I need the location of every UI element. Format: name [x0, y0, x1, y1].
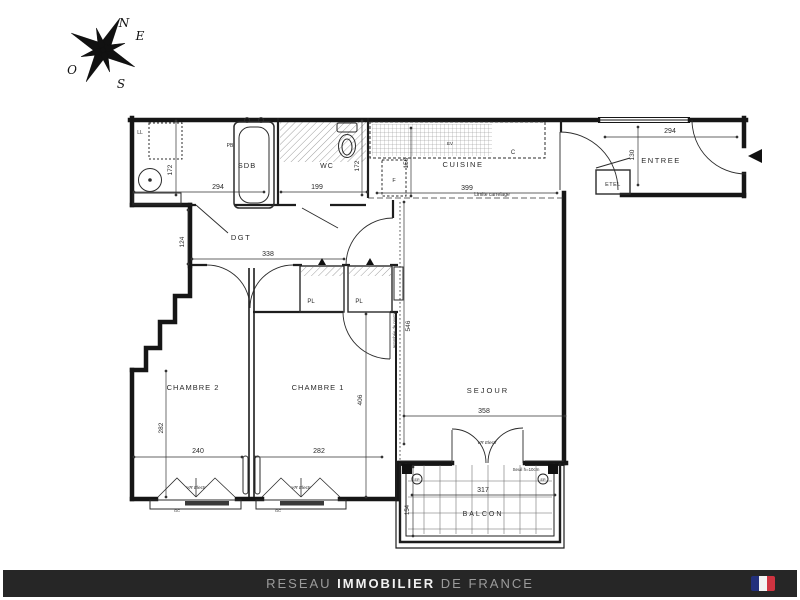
room-label-balcon: BALCON	[463, 511, 504, 518]
french-flag-icon	[751, 576, 775, 591]
dim-cuisine-depth: 150	[403, 157, 410, 168]
room-label-dgt: DGT	[231, 233, 251, 242]
fixture-label-ll: LL	[137, 130, 143, 136]
floor-plan-drawing: N E O S	[0, 0, 800, 570]
exterior-walls	[130, 118, 746, 499]
room-label-pl-1: PL	[307, 299, 315, 305]
room-label-entree: ENTREE	[641, 156, 680, 165]
fixture-label-ep-1: EP	[414, 478, 420, 482]
room-label-chambre1: CHAMBRE 1	[292, 383, 345, 392]
dim-chambre1-width: 282	[313, 448, 325, 455]
dimension-lines	[133, 120, 738, 537]
dim-sejour-height: 546	[405, 320, 412, 331]
dim-sejour-width: 358	[478, 408, 490, 415]
fixture-label-pb: PB	[227, 143, 234, 149]
compass-s-label: S	[117, 77, 125, 91]
fixture-label-gc-2: GC	[275, 508, 281, 513]
windows	[150, 461, 564, 509]
balcony	[396, 463, 564, 548]
entree-window	[598, 118, 690, 123]
dim-chambre1-height: 406	[357, 394, 364, 405]
fixtures	[133, 118, 630, 494]
fixture-label-f: F	[392, 178, 396, 184]
guide-lines	[368, 198, 564, 460]
footer-brand-de-france: DE FRANCE	[435, 576, 534, 591]
dim-chambre2-height: 282	[158, 422, 165, 433]
entry-arrow-icon	[748, 149, 762, 163]
dim-cuisine-width: 399	[461, 185, 473, 192]
fixture-label-ev: EV	[447, 141, 453, 146]
compass-e-label: E	[135, 29, 145, 43]
fixture-label-ep-2: EP	[540, 478, 546, 482]
room-label-sejour: SEJOUR	[467, 386, 509, 395]
dim-wc-depth: 172	[354, 160, 361, 171]
dim-chambre2-width: 240	[192, 448, 204, 455]
dim-balcon-depth: 154	[405, 504, 411, 515]
dim-balcon-width: 317	[477, 487, 489, 494]
room-label-etel: ETEL	[605, 182, 621, 188]
annotation-vr-sejour: VR Electr	[477, 440, 497, 445]
labels: SDB WC CUISINE ENTREE ETEL DGT PL PL CHA…	[137, 128, 680, 518]
compass-rose: N E O S	[54, 1, 151, 98]
floor-plan-page: N E O S	[0, 0, 800, 600]
annotation-limite-carrelage: Limite carrelage	[474, 192, 510, 198]
dim-entree-width: 294	[664, 128, 676, 135]
footer-brand-immobilier: IMMOBILIER	[337, 576, 435, 591]
dim-entree-depth: 130	[629, 149, 636, 160]
annotation-vr-chambre2: VR Electr	[186, 485, 206, 490]
compass-n-label: N	[118, 16, 130, 30]
annotation-seuil: Seuil h=10cm	[513, 467, 540, 472]
room-label-pl-2: PL	[355, 299, 363, 305]
room-label-wc: WC	[320, 163, 334, 170]
room-label-sdb: SDB	[238, 161, 256, 170]
dim-sdb-width: 294	[212, 184, 224, 191]
dim-wc-width: 199	[311, 184, 323, 191]
room-label-cuisine: CUISINE	[443, 160, 484, 169]
dim-sdb-depth: 172	[167, 164, 174, 175]
dim-dgt-depth: 124	[179, 236, 186, 247]
fixture-label-gc-1: GC	[174, 508, 180, 513]
footer-brand-reseau: RESEAU	[266, 576, 337, 591]
footer-brand: RESEAU IMMOBILIER DE FRANCE	[266, 576, 534, 591]
annotation-retombee-poutre: retombée de poutre	[392, 311, 397, 348]
fixture-label-c: C	[511, 150, 516, 156]
compass-o-label: O	[67, 63, 77, 77]
room-label-chambre2: CHAMBRE 2	[167, 383, 220, 392]
annotation-vr-chambre1: VR Electr	[291, 485, 311, 490]
dim-dgt-width: 338	[262, 251, 274, 258]
footer-bar: RESEAU IMMOBILIER DE FRANCE	[3, 570, 797, 597]
